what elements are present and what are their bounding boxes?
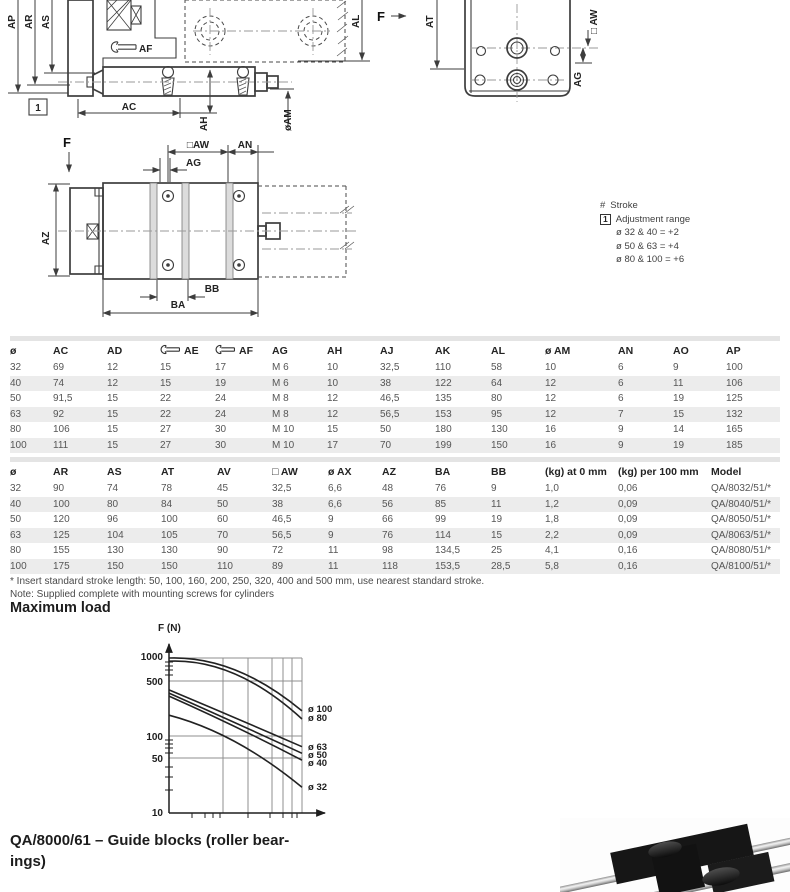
table-cell: 91,5 [53, 391, 107, 407]
dim-label-ap: AP [7, 15, 18, 29]
table-cell: 22 [160, 391, 215, 407]
table-cell: 38 [272, 497, 328, 513]
table-cell: 134,5 [435, 543, 491, 559]
dimension-table-2: øARASATAV□ AWø AXAZBABB(kg) at 0 mm(kg) … [10, 457, 780, 574]
footnotes: * Insert standard stroke length: 50, 100… [10, 575, 484, 601]
chart-grid [169, 658, 302, 813]
table-cell: 125 [53, 528, 107, 544]
table-cell: 78 [161, 481, 217, 497]
dim-label-at: AT [425, 15, 436, 28]
column-header-at: AT [161, 460, 217, 482]
table-header-row: øARASATAV□ AWø AXAZBABB(kg) at 0 mm(kg) … [10, 460, 780, 482]
table-cell: 15 [107, 422, 160, 438]
curve-label-32: ø 32 [308, 782, 327, 793]
cylinder-outline-dashed [185, 0, 348, 62]
guide-heading-line1: QA/8000/61 – Guide blocks (roller bear- [10, 830, 440, 851]
table-row: 50120961006046,596699191,80,09QA/8050/51… [10, 512, 780, 528]
column-header-am: ø AM [545, 339, 618, 361]
table-cell: 80 [107, 497, 161, 513]
table-cell: 185 [726, 438, 780, 454]
table-cell: 99 [435, 512, 491, 528]
table-cell: M 10 [272, 438, 327, 454]
table-cell: 19 [215, 376, 272, 392]
y-tick-10: 10 [152, 808, 164, 819]
maximum-load-chart: 1000 500 100 50 10 F (N) ø 100 ø 80 ø 63… [100, 615, 390, 827]
adjustment-line: ø 50 & 63 = +4 [600, 240, 785, 254]
force-label-f-plan: F [63, 135, 71, 150]
table-cell: 15 [491, 528, 545, 544]
table-cell: 175 [53, 559, 107, 575]
table-cell: 50 [217, 497, 272, 513]
adjustment-range-label: Adjustment range [616, 213, 690, 227]
column-header-aj: AJ [380, 339, 435, 361]
column-header-model: Model [711, 460, 780, 482]
table-cell: 70 [217, 528, 272, 544]
table-row: 3269121517M 61032,5110581069100 [10, 360, 780, 376]
table-cell: 0,09 [618, 512, 711, 528]
table-cell: M 8 [272, 391, 327, 407]
table-cell: 45 [217, 481, 272, 497]
table-cell: 6 [618, 376, 673, 392]
table-cell: 1,2 [545, 497, 618, 513]
table-cell: 125 [726, 391, 780, 407]
table-cell: 10 [545, 360, 618, 376]
table-cell: 80 [10, 543, 53, 559]
table-cell: 70 [380, 438, 435, 454]
table-cell: 14 [673, 422, 726, 438]
column-header-az: AZ [382, 460, 435, 482]
table-cell: 69 [53, 360, 107, 376]
table-row: 5091,5152224M 81246,51358012619125 [10, 391, 780, 407]
column-header-as: AS [107, 460, 161, 482]
table-cell: 40 [10, 376, 53, 392]
side-view: AP AR AS AF [7, 0, 406, 131]
table-cell: 0,09 [618, 528, 711, 544]
table-cell: 11 [491, 497, 545, 513]
column-header-af: AF [215, 339, 272, 361]
table-cell: 15 [673, 407, 726, 423]
table-cell: 40 [10, 497, 53, 513]
column-header-: ø [10, 339, 53, 361]
table-cell: 56 [382, 497, 435, 513]
adjustment-line: ø 80 & 100 = +6 [600, 253, 785, 267]
table-cell: 118 [382, 559, 435, 575]
y-axis-title: F (N) [158, 623, 181, 634]
plan-view: F □AW AN AG AZ [41, 135, 356, 317]
table-cell: 27 [160, 438, 215, 454]
dim-label-az: AZ [41, 232, 52, 245]
dim-label-bb: BB [205, 284, 219, 295]
table-cell: 24 [215, 407, 272, 423]
dim-label-af: AF [139, 44, 152, 55]
table-cell: 7 [618, 407, 673, 423]
dim-label-ar: AR [24, 14, 35, 29]
dim-label-al: AL [351, 15, 362, 28]
column-header-kgper100mm: (kg) per 100 mm [618, 460, 711, 482]
table-cell: 153,5 [435, 559, 491, 575]
stroke-label: Stroke [610, 199, 637, 213]
table-cell: 15 [107, 391, 160, 407]
adjustment-line: ø 32 & 40 = +2 [600, 226, 785, 240]
maximum-load-heading: Maximum load [10, 600, 111, 616]
table-cell: 2,2 [545, 528, 618, 544]
table-cell: 114 [435, 528, 491, 544]
guide-blocks-heading: QA/8000/61 – Guide blocks (roller bear- … [10, 830, 440, 872]
technical-drawing: AP AR AS AF [0, 0, 790, 332]
column-header-ag: AG [272, 339, 327, 361]
table-cell: 76 [382, 528, 435, 544]
ref-number-1: 1 [35, 103, 41, 114]
dim-label-ac: AC [122, 102, 136, 113]
table-cell: 0,16 [618, 543, 711, 559]
table-cell: 48 [382, 481, 435, 497]
table-cell: 30 [215, 422, 272, 438]
table-cell: 38 [380, 376, 435, 392]
column-header-ar: AR [53, 460, 107, 482]
table-cell: 9 [673, 360, 726, 376]
table-cell: 19 [673, 438, 726, 454]
table-cell: 153 [435, 407, 491, 423]
y-tick-100: 100 [146, 732, 163, 743]
table-cell: QA/8032/51/* [711, 481, 780, 497]
wrench-icon [111, 42, 136, 52]
table-cell: QA/8063/51/* [711, 528, 780, 544]
table-cell: 4,1 [545, 543, 618, 559]
table-cell: 50 [10, 512, 53, 528]
table-cell: 106 [726, 376, 780, 392]
table-cell: 1,0 [545, 481, 618, 497]
table-cell: 27 [160, 422, 215, 438]
column-header-ae: AE [160, 339, 215, 361]
dim-label-ag-end: AG [573, 72, 584, 87]
table-cell: 12 [107, 360, 160, 376]
end-view: AT □ AW AG [425, 0, 600, 102]
table-row: 329074784532,56,6487691,00,06QA/8032/51/… [10, 481, 780, 497]
column-header-al: AL [491, 339, 545, 361]
table-cell: 98 [382, 543, 435, 559]
footnote-stroke-length: * Insert standard stroke length: 50, 100… [10, 575, 484, 588]
table-cell: 17 [215, 360, 272, 376]
table-cell: 100 [53, 497, 107, 513]
table-cell: 74 [53, 376, 107, 392]
column-header-av: AV [217, 460, 272, 482]
table-cell: 11 [673, 376, 726, 392]
table-row: 4074121519M 610381226412611106 [10, 376, 780, 392]
table-cell: 130 [491, 422, 545, 438]
table-cell: M 10 [272, 422, 327, 438]
table-cell: 9 [328, 512, 382, 528]
table-cell: 105 [161, 528, 217, 544]
table-cell: 132 [726, 407, 780, 423]
load-curves [169, 658, 302, 787]
table-cell: 24 [215, 391, 272, 407]
column-header-bb: BB [491, 460, 545, 482]
table-cell: 96 [107, 512, 161, 528]
curve-label-80: ø 80 [308, 713, 327, 724]
table-cell: 50 [380, 422, 435, 438]
plug-fitting [162, 67, 174, 96]
hash-symbol: # [600, 199, 605, 213]
table-cell: 110 [217, 559, 272, 575]
column-header-kgat0mm: (kg) at 0 mm [545, 460, 618, 482]
table-cell: 120 [53, 512, 107, 528]
table-cell: 80 [10, 422, 53, 438]
table-cell: 32 [10, 481, 53, 497]
force-label-f-side: F [377, 9, 385, 24]
table-cell: QA/8050/51/* [711, 512, 780, 528]
column-header-ak: AK [435, 339, 491, 361]
column-header-ah: AH [327, 339, 380, 361]
table-cell: 100 [726, 360, 780, 376]
y-tick-500: 500 [146, 677, 163, 688]
table-cell: QA/8040/51/* [711, 497, 780, 513]
dim-label-aw-plan: □AW [187, 140, 210, 151]
table-row: 631251041057056,5976114152,20,09QA/8063/… [10, 528, 780, 544]
column-header-ad: AD [107, 339, 160, 361]
table-cell: 15 [327, 422, 380, 438]
table-cell: 15 [160, 376, 215, 392]
table-cell: 6,6 [328, 481, 382, 497]
table-cell: 11 [328, 559, 382, 575]
table-cell: 6,6 [328, 497, 382, 513]
table-cell: 130 [161, 543, 217, 559]
table-cell: 12 [107, 376, 160, 392]
table-cell: 25 [491, 543, 545, 559]
table-cell: 56,5 [272, 528, 328, 544]
table-cell: 0,09 [618, 497, 711, 513]
column-header-aw: □ AW [272, 460, 328, 482]
table-cell: 106 [53, 422, 107, 438]
dim-label-ah: AH [199, 117, 210, 131]
table-cell: 9 [618, 422, 673, 438]
column-header-ax: ø AX [328, 460, 382, 482]
table-cell: 90 [217, 543, 272, 559]
column-header-ao: AO [673, 339, 726, 361]
table-cell: 64 [491, 376, 545, 392]
table-cell: 9 [491, 481, 545, 497]
table-cell: 50 [10, 391, 53, 407]
table-cell: 74 [107, 481, 161, 497]
y-tick-1000: 1000 [141, 652, 164, 663]
table-cell: 180 [435, 422, 491, 438]
table-cell: 15 [160, 360, 215, 376]
table-cell: 16 [545, 422, 618, 438]
table-cell: 165 [726, 422, 780, 438]
table-cell: 56,5 [380, 407, 435, 423]
table-cell: 84 [161, 497, 217, 513]
table-cell: QA/8100/51/* [711, 559, 780, 575]
table-cell: 104 [107, 528, 161, 544]
guide-heading-line2: ings) [10, 851, 440, 872]
table-cell: 155 [53, 543, 107, 559]
wrench-icon [215, 344, 236, 355]
table-cell: 11 [328, 543, 382, 559]
table-cell: 32,5 [272, 481, 328, 497]
table-cell: 130 [107, 543, 161, 559]
dim-label-aw-end: □ AW [589, 9, 600, 34]
table-cell: 32,5 [380, 360, 435, 376]
table-cell: 12 [545, 391, 618, 407]
table-cell: 72 [272, 543, 328, 559]
table-cell: 111 [53, 438, 107, 454]
table-cell: 85 [435, 497, 491, 513]
column-header-ac: AC [53, 339, 107, 361]
table-cell: 17 [327, 438, 380, 454]
table-cell: 66 [382, 512, 435, 528]
table-cell: 0,06 [618, 481, 711, 497]
table-row: 100111152730M 10177019915016919185 [10, 438, 780, 454]
table-cell: 76 [435, 481, 491, 497]
table-cell: 100 [10, 559, 53, 575]
column-header-ba: BA [435, 460, 491, 482]
wrench-icon [160, 344, 181, 355]
table-cell: M 8 [272, 407, 327, 423]
column-header-: ø [10, 460, 53, 482]
table-cell: 100 [161, 512, 217, 528]
table-cell: 12 [545, 376, 618, 392]
table-row: 80106152730M 10155018013016914165 [10, 422, 780, 438]
table-row: 1001751501501108911118153,528,55,80,16QA… [10, 559, 780, 575]
table-cell: 80 [491, 391, 545, 407]
table-cell: 63 [10, 407, 53, 423]
ref-number-1-note: 1 [600, 214, 611, 225]
table-cell: 22 [160, 407, 215, 423]
table-cell: 90 [53, 481, 107, 497]
table-cell: 0,16 [618, 559, 711, 575]
table-cell: 12 [327, 391, 380, 407]
table-cell: 30 [215, 438, 272, 454]
table-cell: 6 [618, 360, 673, 376]
table-cell: 6 [618, 391, 673, 407]
table-cell: 46,5 [380, 391, 435, 407]
table-cell: 199 [435, 438, 491, 454]
table-cell: 150 [161, 559, 217, 575]
table-cell: 9 [618, 438, 673, 454]
table-cell: 89 [272, 559, 328, 575]
table-cell: 10 [327, 376, 380, 392]
table-cell: 150 [491, 438, 545, 454]
dim-label-ag-plan: AG [186, 158, 201, 169]
curve-label-40: ø 40 [308, 758, 327, 769]
table-cell: 19 [491, 512, 545, 528]
table-cell: 15 [107, 407, 160, 423]
table-cell: 92 [53, 407, 107, 423]
table-cell: 95 [491, 407, 545, 423]
table-cell: 135 [435, 391, 491, 407]
table-cell: M 6 [272, 376, 327, 392]
column-header-ap: AP [726, 339, 780, 361]
guide-block-photo [560, 818, 790, 892]
table-cell: QA/8080/51/* [711, 543, 780, 559]
table-cell: 16 [545, 438, 618, 454]
table-cell: 5,8 [545, 559, 618, 575]
table-cell: 58 [491, 360, 545, 376]
dim-label-an: AN [238, 140, 252, 151]
column-header-an: AN [618, 339, 673, 361]
table-cell: 100 [10, 438, 53, 454]
table-header-row: øACADAEAFAGAHAJAKALø AMANAOAP [10, 339, 780, 361]
table-cell: 122 [435, 376, 491, 392]
datasheet-page: { "drawing": { "side": {"ap":"AP","ar":"… [0, 0, 790, 892]
table-cell: 28,5 [491, 559, 545, 575]
dimension-table-1: øACADAEAFAGAHAJAKALø AMANAOAP3269121517M… [10, 336, 780, 453]
table-cell: 1,8 [545, 512, 618, 528]
table-cell: 15 [107, 438, 160, 454]
dim-label-as: AS [41, 15, 52, 29]
table-cell: 150 [107, 559, 161, 575]
table-cell: 12 [327, 407, 380, 423]
table-row: 40100808450386,65685111,20,09QA/8040/51/… [10, 497, 780, 513]
dim-label-am: øAM [283, 109, 294, 131]
table-cell: 110 [435, 360, 491, 376]
table-cell: 9 [328, 528, 382, 544]
table-row: 8015513013090721198134,5254,10,16QA/8080… [10, 543, 780, 559]
load-curve-63 [169, 690, 302, 747]
stroke-note: # Stroke 1 Adjustment range ø 32 & 40 = … [600, 199, 785, 267]
dim-label-ba: BA [171, 300, 185, 311]
cylinder-outline-dashed-plan [258, 186, 354, 277]
table-cell: 63 [10, 528, 53, 544]
table-cell: 60 [217, 512, 272, 528]
table-row: 6392152224M 81256,51539512715132 [10, 407, 780, 423]
plug-fitting [237, 67, 249, 96]
y-tick-50: 50 [152, 754, 164, 765]
table-cell: 32 [10, 360, 53, 376]
table-cell: 46,5 [272, 512, 328, 528]
table-cell: 10 [327, 360, 380, 376]
table-cell: 12 [545, 407, 618, 423]
load-curve-40 [169, 696, 302, 760]
table-cell: 19 [673, 391, 726, 407]
table-cell: M 6 [272, 360, 327, 376]
